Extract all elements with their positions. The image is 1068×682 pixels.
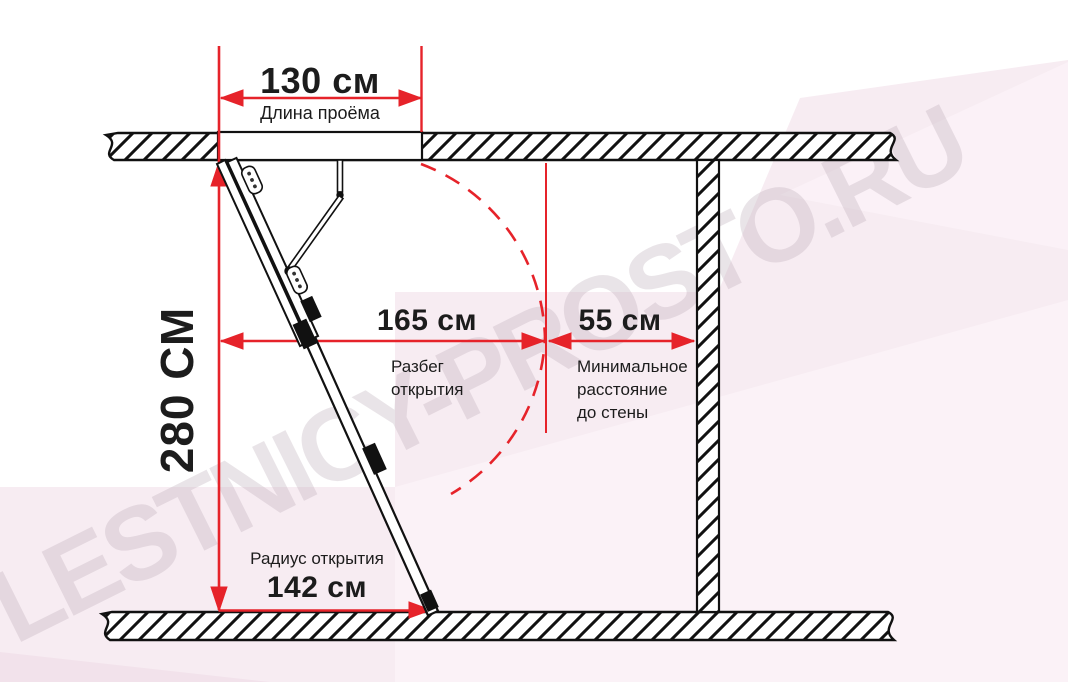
arrowhead [211,587,227,611]
label-opening-radius: Радиус открытия [217,547,417,570]
ceiling-opening [218,132,422,160]
floor-slab [102,612,894,640]
dimension-opening-length: 130 см [210,60,430,102]
strut-anchor [338,160,343,192]
arrowhead [221,333,243,349]
label-opening-run: Разбег открытия [391,355,463,401]
right-wall [697,160,719,612]
dimension-wall-clearance: 55 см [530,304,710,338]
label-opening-length: Длина проёма [220,102,420,125]
dimension-room-height: 280 СМ [150,290,196,490]
strut-rod [287,196,343,272]
dimension-opening-radius: 142 см [227,571,407,605]
diagram-canvas: LESTNICY-PROSTO.RU [0,0,1068,682]
label-wall-clearance: Минимальное расстояние до стены [577,355,688,424]
dimension-opening-run: 165 см [337,304,517,338]
